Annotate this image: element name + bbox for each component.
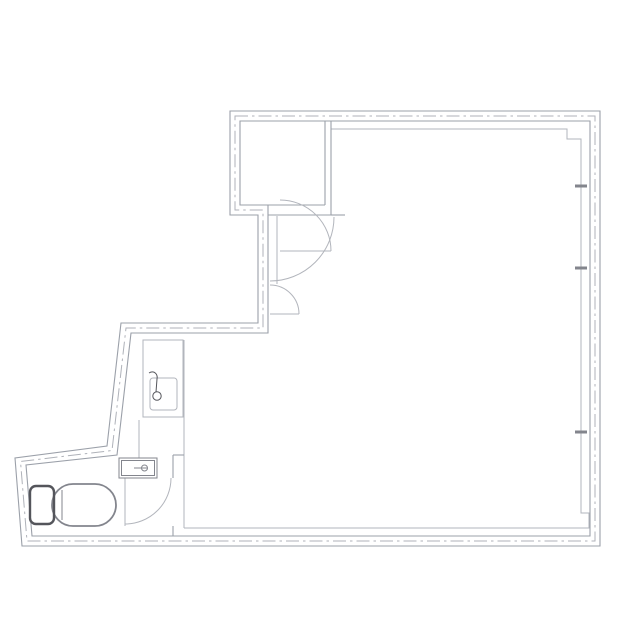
floor-plan-drawing: 収納 [0, 0, 628, 644]
exterior-wall-outer-line [15, 111, 600, 546]
wall-centerline-path [21, 116, 596, 541]
floor-plan-page: 収納 [0, 0, 628, 644]
doors [125, 200, 334, 526]
vanity [143, 340, 183, 417]
faucet-icon [153, 392, 161, 400]
closet-door-arc [280, 200, 331, 251]
hand-wash-unit [119, 458, 157, 478]
exterior-wall-inner-line [26, 121, 590, 536]
exterior-walls [15, 111, 600, 546]
toilet-door-arc [125, 478, 171, 524]
toilet-fixture [30, 484, 116, 526]
vanity-sink [150, 378, 177, 410]
vanity-faucet [147, 372, 161, 400]
closet-label-group: 収納 [271, 155, 302, 171]
hand-wash-spout-block [125, 465, 134, 473]
room-face-lines [139, 129, 589, 528]
toilet-tank [30, 486, 54, 524]
small-door-arc [270, 285, 299, 314]
closet-room-label: 収納 [271, 155, 302, 171]
wall-centerline [21, 116, 596, 541]
